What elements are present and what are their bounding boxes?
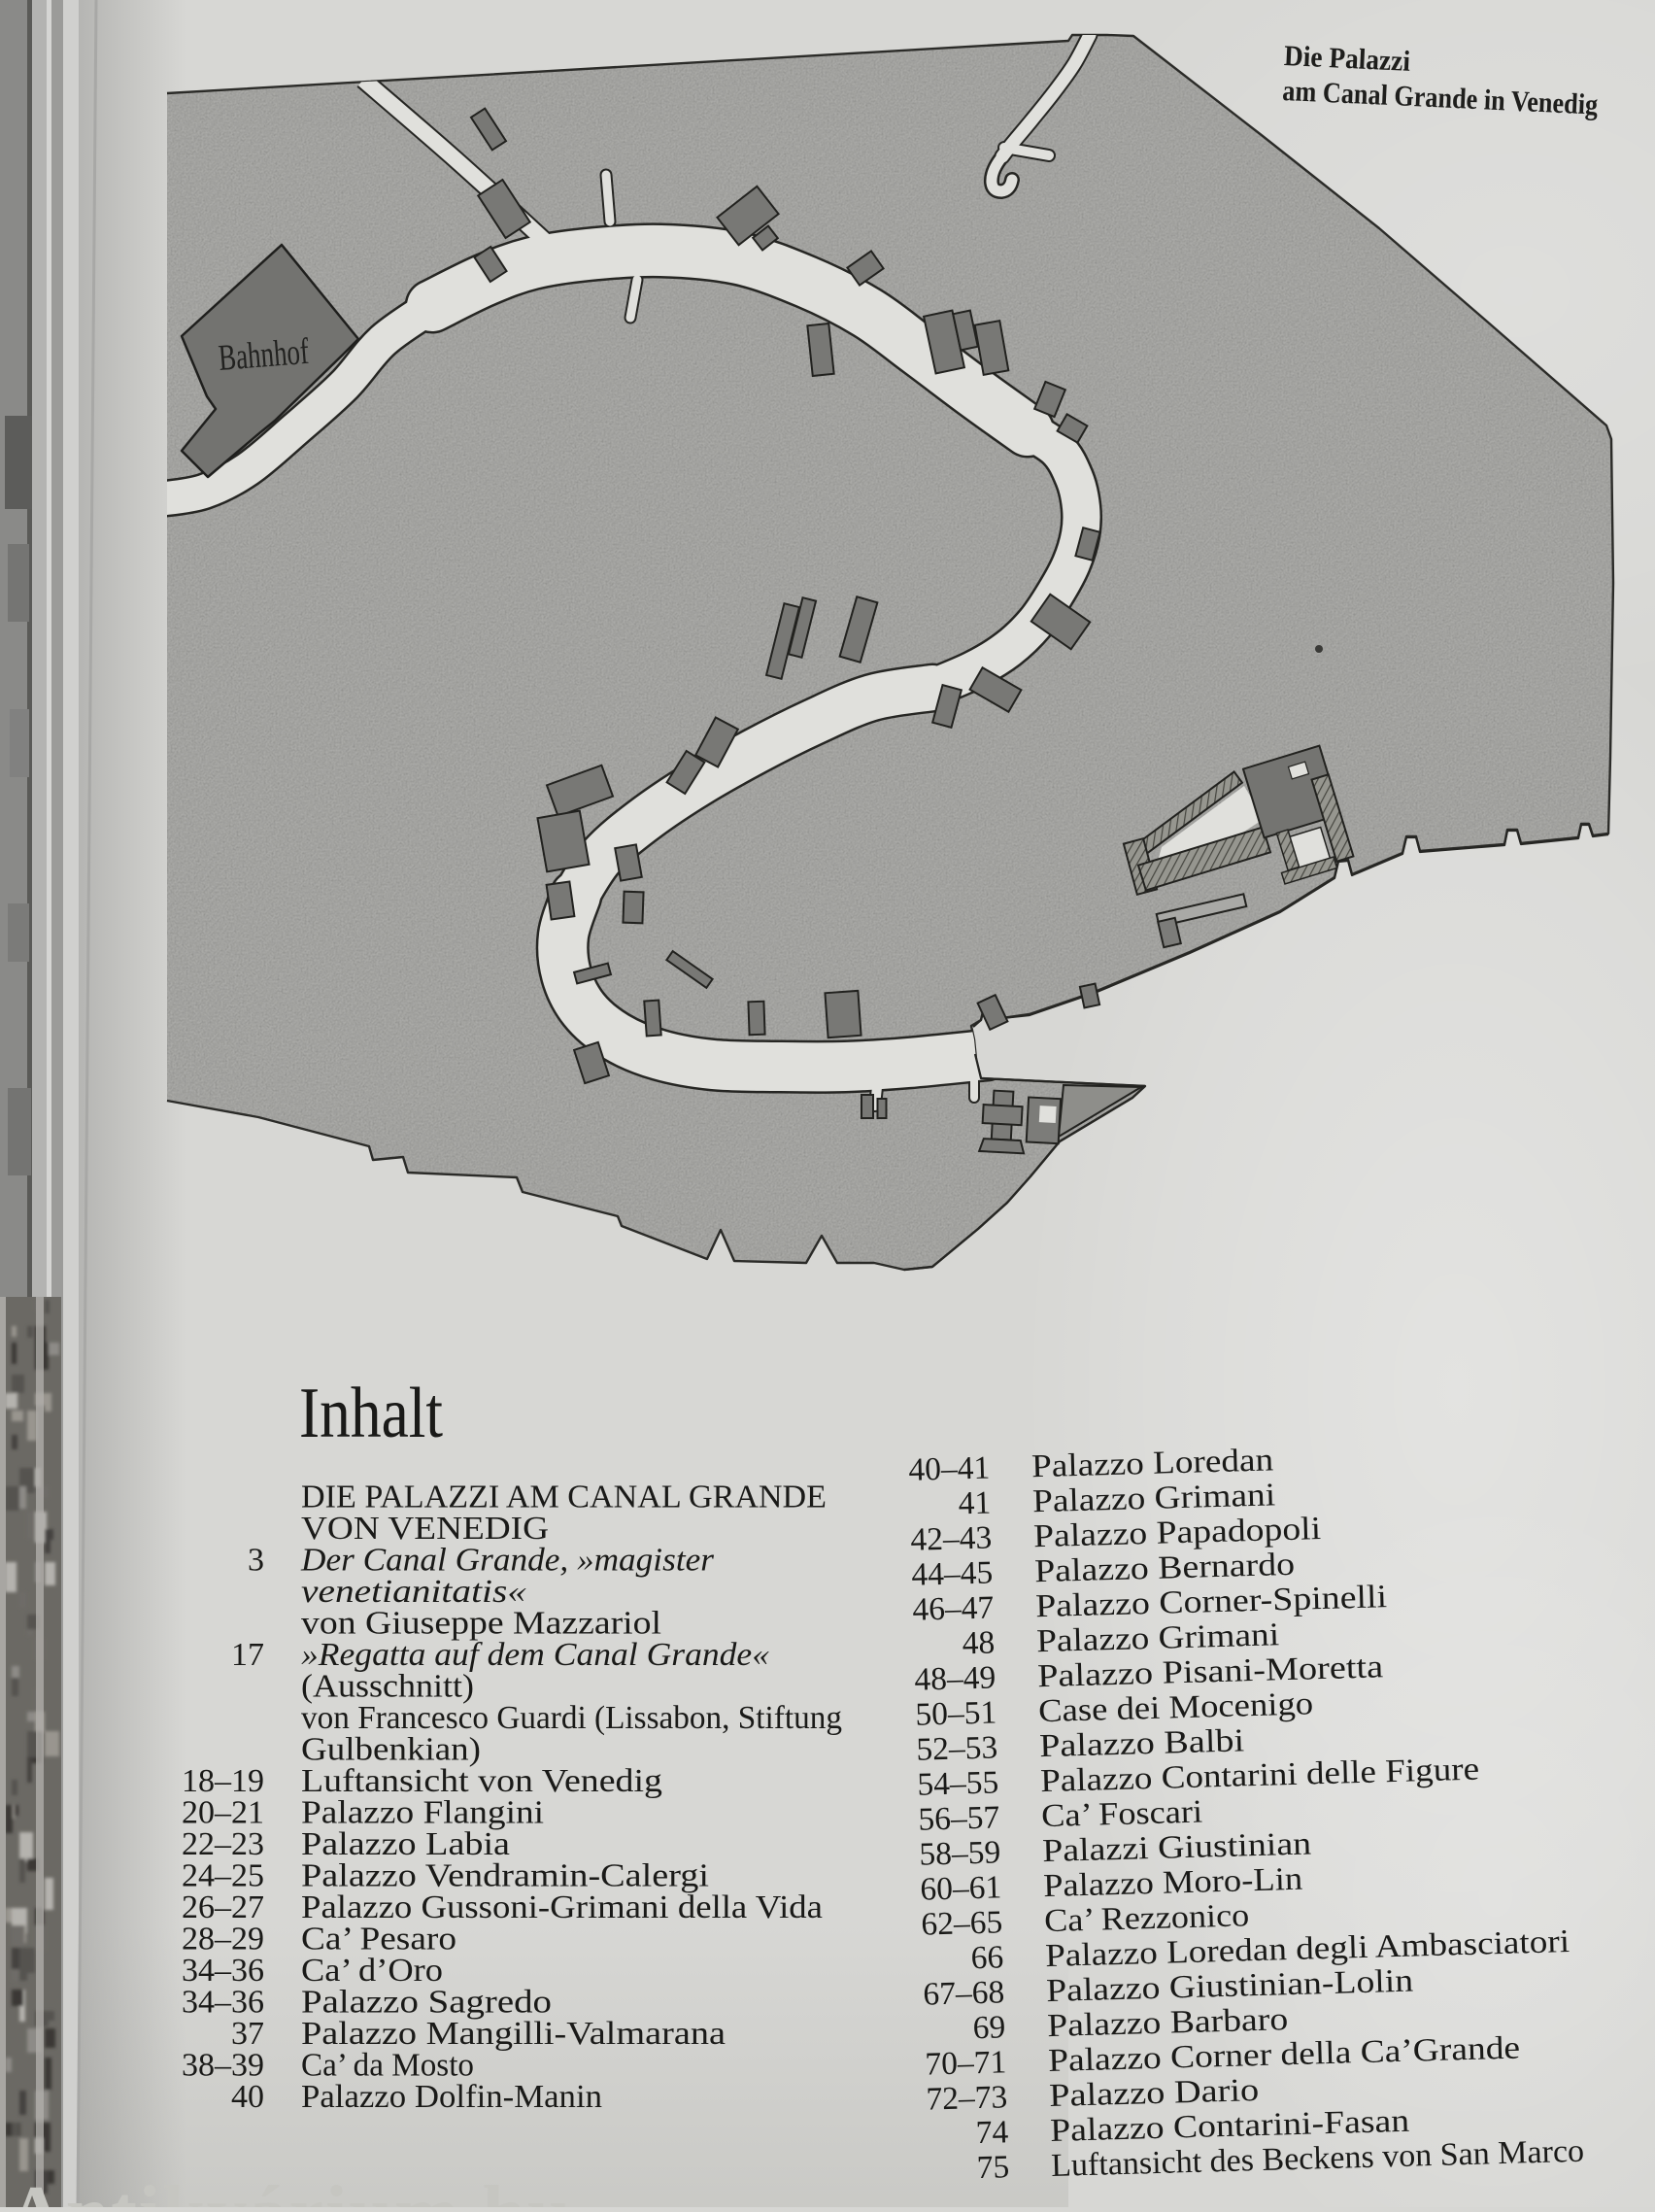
svg-text:Palazzo Moro-Lin: Palazzo Moro-Lin <box>1043 1861 1303 1904</box>
svg-text:40: 40 <box>231 2079 264 2115</box>
svg-text:Ca’ d’Oro: Ca’ d’Oro <box>301 1953 443 1989</box>
svg-text:54–55: 54–55 <box>917 1764 999 1802</box>
svg-text:Ca’ Foscari: Ca’ Foscari <box>1041 1794 1203 1835</box>
svg-text:48–49: 48–49 <box>914 1659 996 1697</box>
svg-text:Luftansicht von Venedig: Luftansicht von Venedig <box>301 1763 662 1799</box>
svg-text:Der Canal Grande, »magister: Der Canal Grande, »magister <box>300 1542 715 1578</box>
svg-text:18–19: 18–19 <box>182 1763 264 1799</box>
svg-text:24–25: 24–25 <box>182 1857 264 1893</box>
svg-text:60–61: 60–61 <box>920 1869 1002 1907</box>
svg-text:67–68: 67–68 <box>923 1974 1005 2012</box>
svg-text:Bahnhof: Bahnhof <box>217 331 310 379</box>
svg-text:74: 74 <box>975 2114 1009 2151</box>
svg-text:Inhalt: Inhalt <box>299 1374 443 1453</box>
svg-text:52–53: 52–53 <box>916 1729 998 1767</box>
svg-text:37: 37 <box>231 2016 264 2052</box>
svg-text:Palazzo Mangilli-Valmarana: Palazzo Mangilli-Valmarana <box>301 2016 726 2052</box>
svg-text:69: 69 <box>972 2009 1006 2046</box>
svg-text:Palazzo Gussoni-Grimani della: Palazzo Gussoni-Grimani della Vida <box>301 1889 823 1925</box>
svg-text:34–36: 34–36 <box>182 1984 264 2020</box>
svg-text:venetianitatis«: venetianitatis« <box>301 1574 526 1610</box>
svg-text:22–23: 22–23 <box>182 1826 264 1862</box>
svg-text:3: 3 <box>248 1542 264 1578</box>
svg-text:38–39: 38–39 <box>182 2047 264 2083</box>
svg-text:»Regatta auf dem Canal Grande«: »Regatta auf dem Canal Grande« <box>301 1637 769 1673</box>
svg-text:66: 66 <box>970 1939 1004 1976</box>
svg-text:44–45: 44–45 <box>911 1554 994 1592</box>
svg-text:70–71: 70–71 <box>925 2044 1007 2082</box>
svg-text:VON VENEDIG: VON VENEDIG <box>301 1511 549 1547</box>
svg-text:41: 41 <box>958 1485 992 1522</box>
svg-text:56–57: 56–57 <box>918 1799 1000 1837</box>
svg-text:von Francesco Guardi (Lissabon: von Francesco Guardi (Lissabon, Stiftung <box>301 1700 842 1736</box>
svg-text:28–29: 28–29 <box>182 1921 264 1957</box>
svg-text:Palazzo Labia: Palazzo Labia <box>301 1826 510 1862</box>
svg-text:von Giuseppe Mazzariol: von Giuseppe Mazzariol <box>301 1605 661 1641</box>
svg-text:48: 48 <box>962 1624 996 1661</box>
svg-text:62–65: 62–65 <box>921 1904 1003 1942</box>
svg-text:42–43: 42–43 <box>910 1519 993 1557</box>
svg-text:46–47: 46–47 <box>912 1589 995 1627</box>
svg-text:34–36: 34–36 <box>182 1953 264 1989</box>
svg-text:26–27: 26–27 <box>182 1889 264 1925</box>
svg-text:(Ausschnitt): (Ausschnitt) <box>301 1668 474 1704</box>
svg-text:DIE PALAZZI AM CANAL GRANDE: DIE PALAZZI AM CANAL GRANDE <box>301 1479 827 1514</box>
svg-text:17: 17 <box>231 1637 264 1673</box>
svg-text:20–21: 20–21 <box>182 1794 264 1830</box>
svg-text:Die Palazzi: Die Palazzi <box>1283 40 1410 78</box>
svg-text:75: 75 <box>976 2149 1010 2186</box>
svg-text:Ca’ Pesaro: Ca’ Pesaro <box>301 1921 456 1957</box>
svg-text:Gulbenkian): Gulbenkian) <box>301 1731 481 1767</box>
svg-text:Palazzo Sagredo: Palazzo Sagredo <box>301 1984 552 2020</box>
svg-text:Case dei Mocenigo: Case dei Mocenigo <box>1038 1685 1314 1729</box>
svg-text:Palazzo Vendramin-Calergi: Palazzo Vendramin-Calergi <box>301 1857 709 1893</box>
svg-text:50–51: 50–51 <box>915 1694 997 1732</box>
svg-text:Antikvárium.hu: Antikvárium.hu <box>8 2171 572 2207</box>
svg-text:58–59: 58–59 <box>919 1834 1001 1872</box>
svg-text:40–41: 40–41 <box>908 1450 991 1488</box>
svg-text:Palazzo Dolfin-Manin: Palazzo Dolfin-Manin <box>301 2079 602 2115</box>
svg-text:Palazzo Flangini: Palazzo Flangini <box>301 1794 544 1830</box>
svg-text:Ca’ da Mosto: Ca’ da Mosto <box>301 2047 474 2083</box>
svg-text:72–73: 72–73 <box>926 2079 1008 2117</box>
